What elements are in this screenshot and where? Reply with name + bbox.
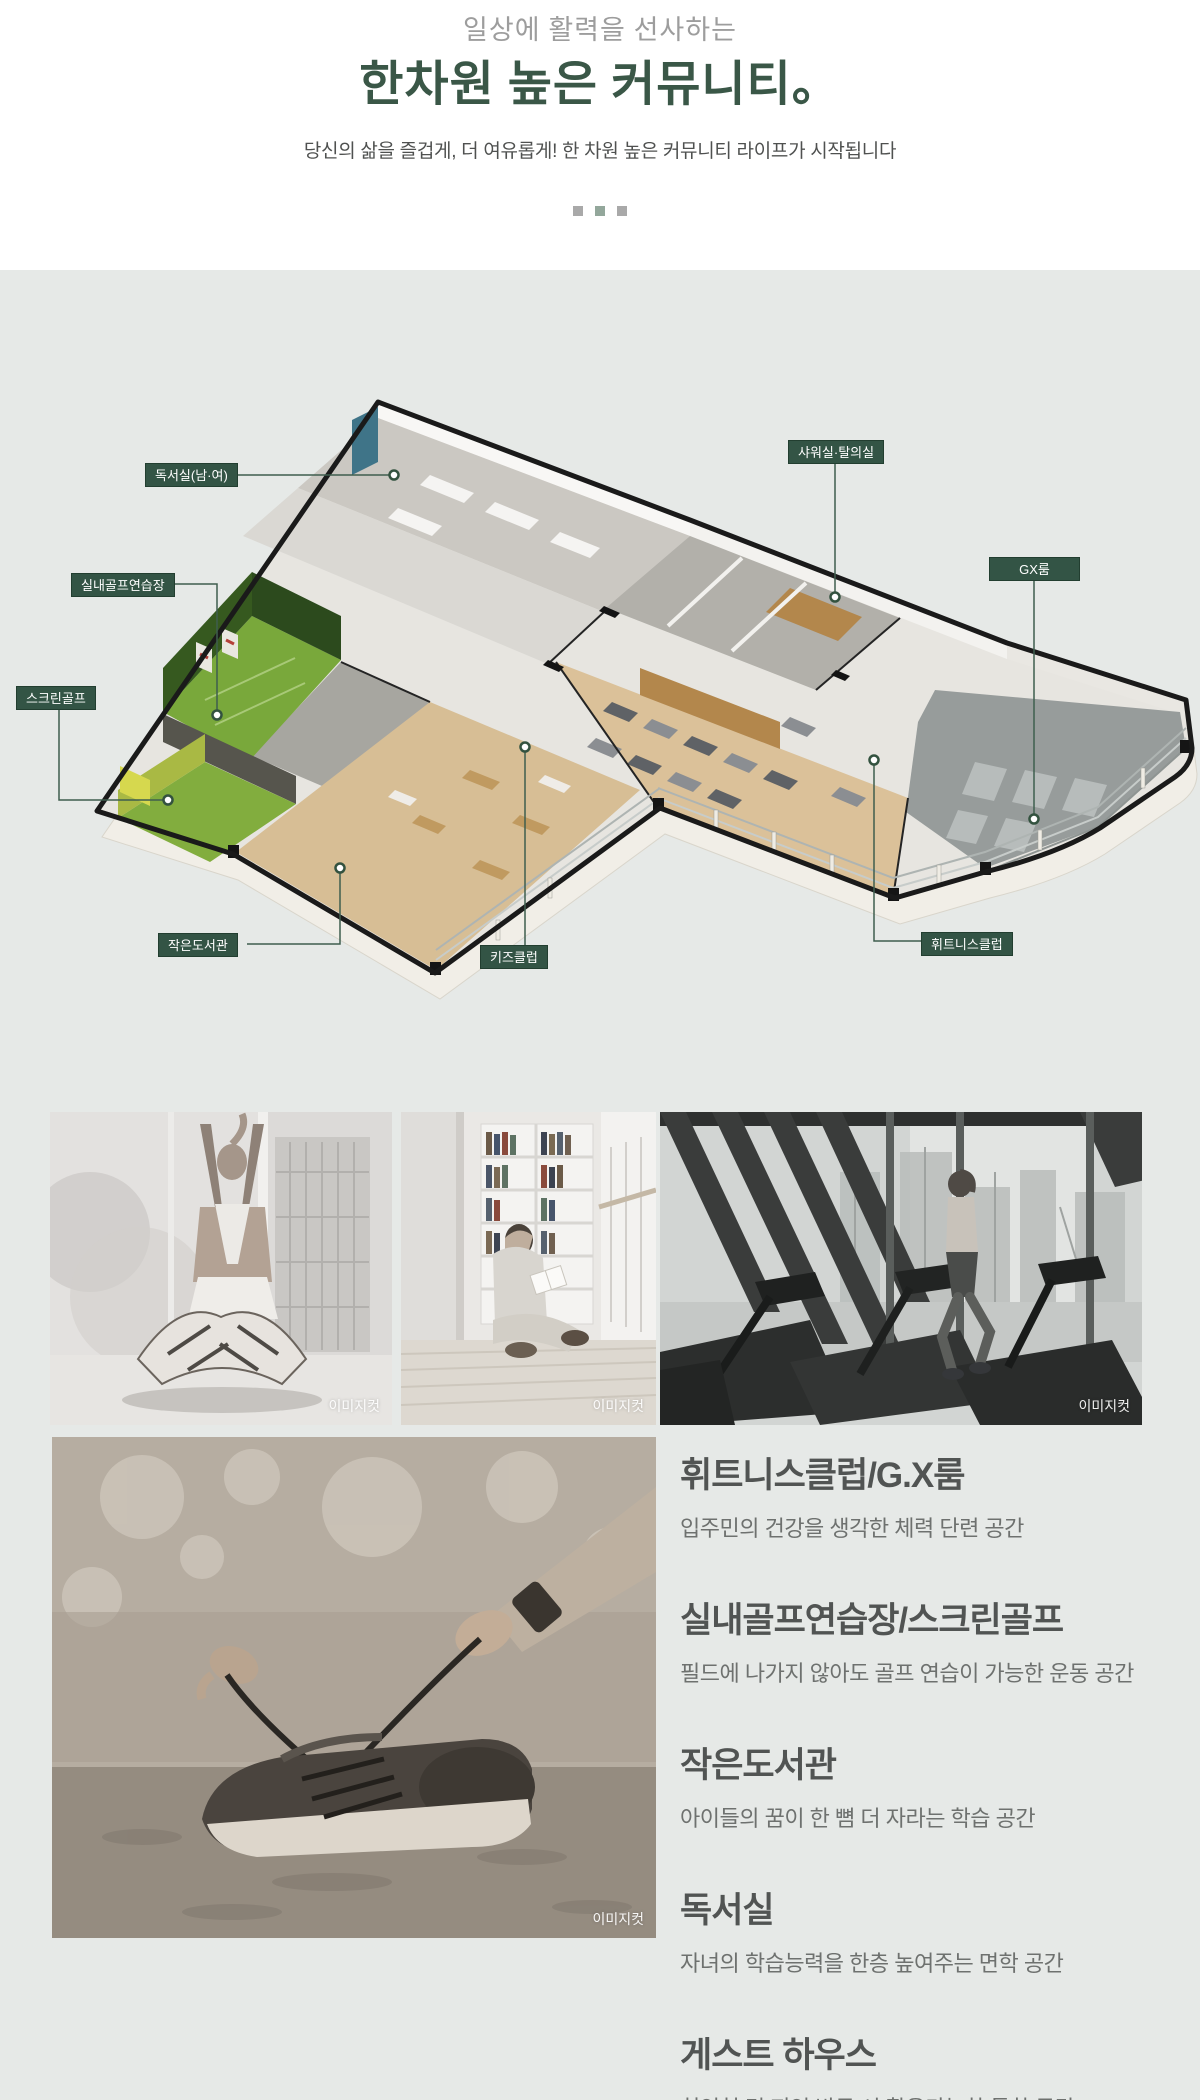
page-header: 일상에 활력을 선사하는 한차원 높은 커뮤니티。 당신의 삶을 즐겁게, 더 … [0, 0, 1200, 270]
plan-label-reading-room: 독서실(남·여) [145, 463, 238, 487]
feature-item-guest-house: 게스트 하우스 친인척 및 지인 방문 시 활용가능한 특화 공간 [680, 2027, 1170, 2100]
community-page: 일상에 활력을 선사하는 한차원 높은 커뮤니티。 당신의 삶을 즐겁게, 더 … [0, 0, 1200, 2100]
photo-yoga-stretch: 이미지컷 [50, 1112, 392, 1425]
photo-caption: 이미지컷 [592, 1909, 644, 1929]
photo-caption: 이미지컷 [592, 1396, 644, 1416]
yoga-stretch-illustration [50, 1112, 392, 1425]
feature-item-reading-room: 독서실 자녀의 학습능력을 한층 높여주는 면학 공간 [680, 1882, 1170, 1978]
feature-description: 필드에 나가지 않아도 골프 연습이 가능한 운동 공간 [680, 1656, 1170, 1688]
photo-caption: 이미지컷 [328, 1396, 380, 1416]
dots-decoration [0, 206, 1200, 216]
feature-description: 자녀의 학습능력을 한층 높여주는 면학 공간 [680, 1946, 1170, 1978]
header-description: 당신의 삶을 즐겁게, 더 여유롭게! 한 차원 높은 커뮤니티 라이프가 시작… [0, 136, 1200, 163]
feature-description: 아이들의 꿈이 한 뼘 더 자라는 학습 공간 [680, 1801, 1170, 1833]
plan-label-small-library: 작은도서관 [158, 933, 238, 957]
library-reading-illustration [401, 1112, 656, 1425]
dot-icon [573, 206, 583, 216]
community-section: 독서실(남·여) 실내골프연습장 스크린골프 작은도서관 키즈클럽 샤워실·탈의… [0, 270, 1200, 2100]
feature-item-fitness: 휘트니스클럽/G.X룸 입주민의 건강을 생각한 체력 단련 공간 [680, 1447, 1170, 1543]
photo-treadmill-run: 이미지컷 [660, 1112, 1142, 1425]
feature-description: 친인척 및 지인 방문 시 활용가능한 특화 공간 [680, 2091, 1170, 2100]
plan-label-indoor-golf: 실내골프연습장 [71, 573, 175, 597]
feature-title: 독서실 [680, 1882, 1170, 1933]
treadmill-run-illustration [660, 1112, 1142, 1425]
photo-library-reading: 이미지컷 [401, 1112, 656, 1425]
page-title: 한차원 높은 커뮤니티。 [0, 44, 1200, 114]
feature-item-golf: 실내골프연습장/스크린골프 필드에 나가지 않아도 골프 연습이 가능한 운동 … [680, 1592, 1170, 1688]
feature-description: 입주민의 건강을 생각한 체력 단련 공간 [680, 1511, 1170, 1543]
dot-icon [617, 206, 627, 216]
header-eyebrow: 일상에 활력을 선사하는 [0, 8, 1200, 47]
feature-list: 휘트니스클럽/G.X룸 입주민의 건강을 생각한 체력 단련 공간 실내골프연습… [680, 1447, 1170, 2100]
feature-item-library: 작은도서관 아이들의 꿈이 한 뼘 더 자라는 학습 공간 [680, 1737, 1170, 1833]
dot-icon [595, 206, 605, 216]
plan-label-kids-club: 키즈클럽 [480, 945, 548, 969]
floorplan-illustration [0, 270, 1200, 1110]
plan-label-fitness-club: 휘트니스클럽 [921, 932, 1013, 956]
plan-label-gx-room: GX룸 [989, 557, 1080, 581]
plan-label-screen-golf: 스크린골프 [16, 686, 96, 710]
shoe-tying-illustration [52, 1437, 656, 1938]
photo-caption: 이미지컷 [1078, 1396, 1130, 1416]
feature-title: 실내골프연습장/스크린골프 [680, 1592, 1170, 1643]
plan-label-shower-locker: 샤워실·탈의실 [788, 440, 884, 464]
feature-title: 휘트니스클럽/G.X룸 [680, 1447, 1170, 1498]
feature-title: 작은도서관 [680, 1737, 1170, 1788]
photo-shoe-tying: 이미지컷 [52, 1437, 656, 1938]
feature-title: 게스트 하우스 [680, 2027, 1170, 2078]
